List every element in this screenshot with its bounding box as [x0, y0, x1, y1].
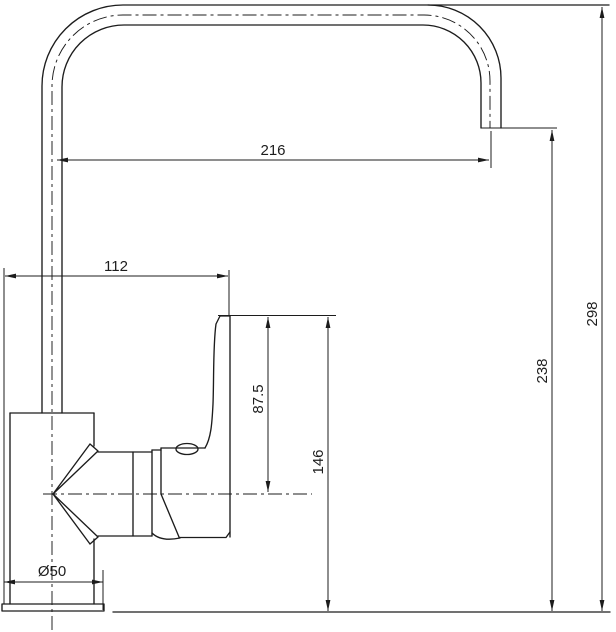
cone-lower-edges [53, 494, 98, 544]
handle-joint-ellipse [176, 444, 198, 455]
arrowhead-left [5, 274, 16, 279]
dimension-spout-reach: 216 [57, 131, 491, 168]
arrowhead-top [600, 7, 605, 18]
dimension-total-height: 298 [584, 7, 604, 611]
handle-body-underside-arc [152, 533, 180, 539]
spout-inner-edge [62, 25, 481, 413]
dimension-base-diameter: Ø50 [4, 563, 103, 610]
arrowhead-bottom [550, 600, 555, 611]
arrowhead-bottom [600, 600, 605, 611]
dimension-outlet-height: 238 [534, 130, 554, 611]
arrowhead-right [217, 274, 228, 279]
dim-handle-to-axis-label: 87.5 [250, 384, 267, 413]
dimension-handle-height: 146 [218, 316, 336, 612]
technical-drawing-sheet: 216 112 298 238 [0, 0, 616, 632]
dim-handle-height-label: 146 [310, 449, 327, 474]
faucet-centerlines [43, 15, 490, 630]
arrowhead-bottom [326, 600, 331, 611]
faucet-handle [152, 316, 230, 539]
arrowhead-top [266, 317, 271, 328]
arrowhead-right [92, 580, 103, 585]
faucet-dimension-drawing: 216 112 298 238 [0, 0, 616, 632]
dimension-body-width: 112 [4, 258, 229, 604]
dim-outlet-height-label: 238 [534, 358, 551, 383]
base-plate [2, 604, 104, 611]
arrowhead-bottom [266, 481, 271, 492]
dim-spout-reach-label: 216 [260, 142, 285, 159]
handle-body-bottom-edge [179, 532, 230, 538]
spout-centerline [52, 15, 490, 630]
dim-total-height-label: 298 [584, 301, 601, 326]
arrowhead-top [326, 317, 331, 328]
dimension-handle-to-axis: 87.5 [250, 317, 270, 492]
arrowhead-top [550, 130, 555, 141]
faucet-body [2, 413, 161, 611]
cone-upper-edges [53, 444, 98, 494]
faucet-spout [42, 5, 609, 413]
lever-left-edge [205, 316, 220, 448]
handle-body-front-taper [161, 494, 179, 537]
arrowhead-right [478, 158, 489, 163]
dim-body-width-label: 112 [104, 258, 128, 275]
dim-base-diameter-label: Ø50 [38, 563, 66, 580]
spout-outer-edge [42, 5, 609, 413]
